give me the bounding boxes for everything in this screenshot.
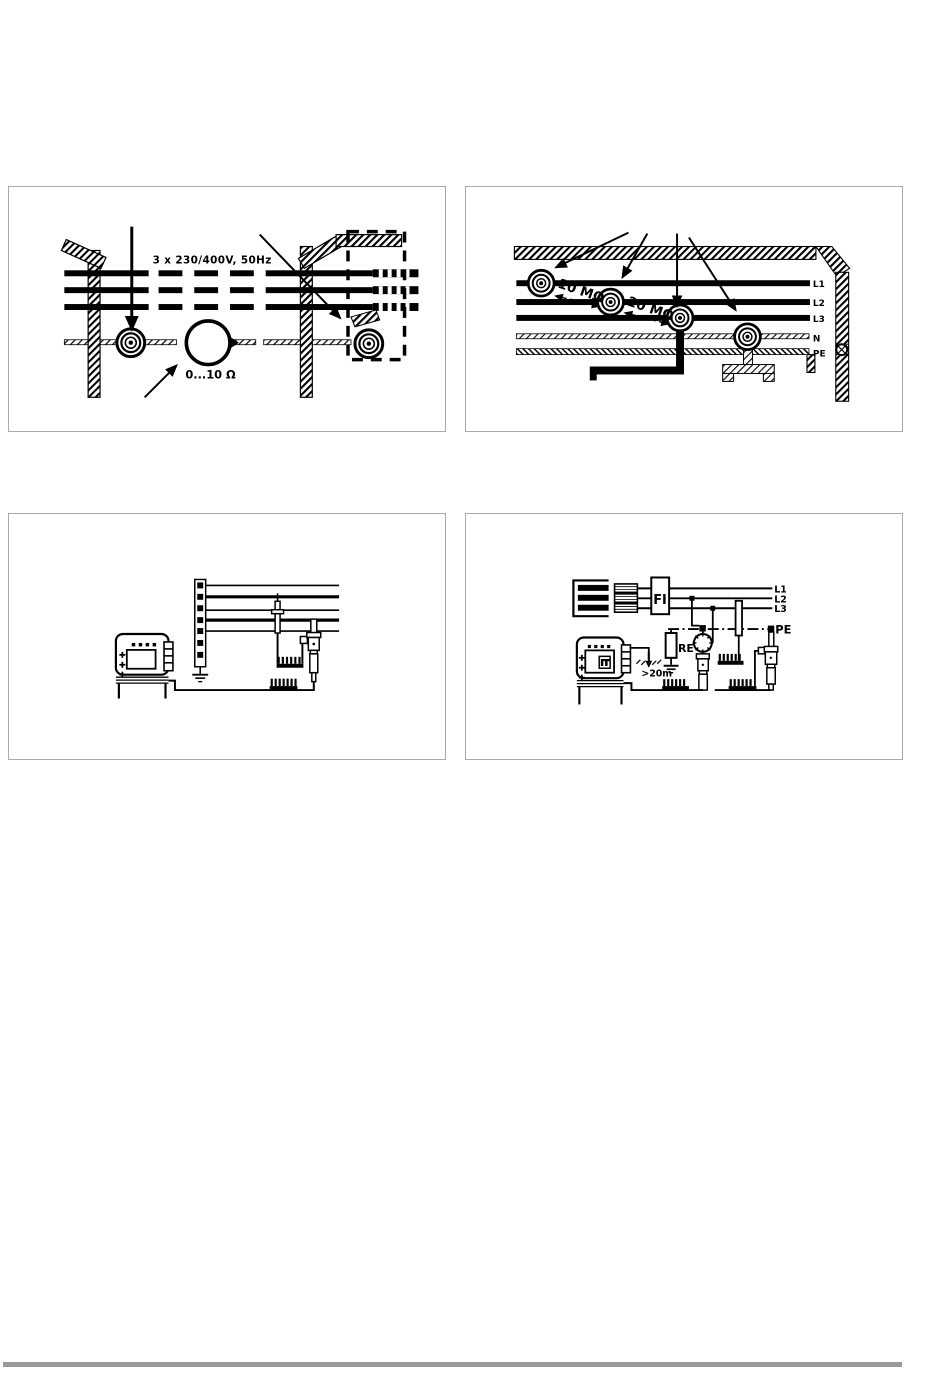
panel-overhead-line: 3 x 230/400V, 50Hz 0...10 Ω: [8, 186, 446, 432]
loop-resistance-diagram: 3 x 230/400V, 50Hz 0...10 Ω: [9, 187, 445, 431]
supply-source: [573, 580, 608, 616]
service-hook: [351, 310, 380, 327]
earth-resistor-label: RE: [678, 642, 694, 655]
device-stand: [577, 681, 624, 687]
distance-label: >20m: [641, 669, 672, 680]
device-terminals: [622, 645, 631, 673]
probe-pe: [758, 632, 777, 690]
clamp-connector-left: [117, 329, 145, 357]
panel-insulation: L1 L2 L3 N PE: [465, 186, 903, 432]
probe-electrode: [696, 654, 709, 690]
fuse-terminals: [373, 269, 419, 311]
probe-pe-side-lead: [755, 651, 758, 686]
document-page: 3 x 230/400V, 50Hz 0...10 Ω: [0, 0, 950, 1379]
long-probe: [736, 601, 742, 661]
earth-resistance-diagram: L1 L2 L3 FI PE: [466, 514, 902, 759]
earth-symbol: [192, 667, 208, 682]
connector-n: [735, 324, 761, 350]
label-l1: L1: [813, 280, 825, 290]
earth-resistor: RE: [664, 629, 694, 673]
connector-block-a: [718, 654, 744, 665]
connector-block-c: [729, 679, 757, 690]
panel-continuity: [8, 513, 446, 760]
device-terminals: [164, 642, 173, 671]
junctions: [689, 596, 774, 632]
device-display: [127, 650, 156, 669]
test-probe-2: [300, 619, 320, 681]
display-mode: IT: [601, 659, 610, 668]
loop-resistance-label: 0...10 Ω: [185, 367, 236, 381]
conductors: [205, 585, 339, 631]
clamp-connector-right: [355, 330, 383, 358]
insulation-resistance-diagram: L1 L2 L3 N PE: [466, 187, 902, 431]
terminal-strip: [192, 579, 208, 681]
panel-earth: L1 L2 L3 FI PE: [465, 513, 903, 760]
wall-socket: [836, 344, 848, 356]
label-l3: L3: [774, 604, 787, 615]
label-n: N: [813, 335, 820, 345]
auxiliary-earth-spike: [629, 648, 661, 668]
rcd-box: FI: [651, 577, 669, 614]
rcd-label: FI: [653, 593, 667, 608]
fuses: [615, 584, 638, 612]
label-pe: PE: [813, 350, 826, 360]
connector-block-b: [662, 679, 689, 690]
connector-l1: [528, 270, 554, 296]
connector-block-1: [277, 657, 304, 668]
pe-label: PE: [775, 623, 791, 637]
continuity-diagram: [9, 514, 445, 759]
right-pole: [298, 235, 401, 398]
label-l3: L3: [813, 315, 825, 325]
tester-device: [116, 634, 173, 698]
measuring-loop: [186, 321, 239, 365]
footer-rule: [3, 1362, 902, 1367]
phase-labels: L1 L2 L3: [774, 584, 787, 615]
voltage-label: 3 x 230/400V, 50Hz: [153, 254, 272, 266]
line-labels: L1 L2 L3 N PE: [813, 280, 826, 359]
device-stand: [116, 677, 169, 683]
tester-device: IT: [577, 637, 631, 704]
label-l2: L2: [813, 299, 825, 309]
connector-block-2: [270, 679, 298, 690]
test-probe-1: [272, 593, 284, 633]
earth-electrode: [692, 633, 713, 654]
left-pole: [61, 240, 106, 398]
